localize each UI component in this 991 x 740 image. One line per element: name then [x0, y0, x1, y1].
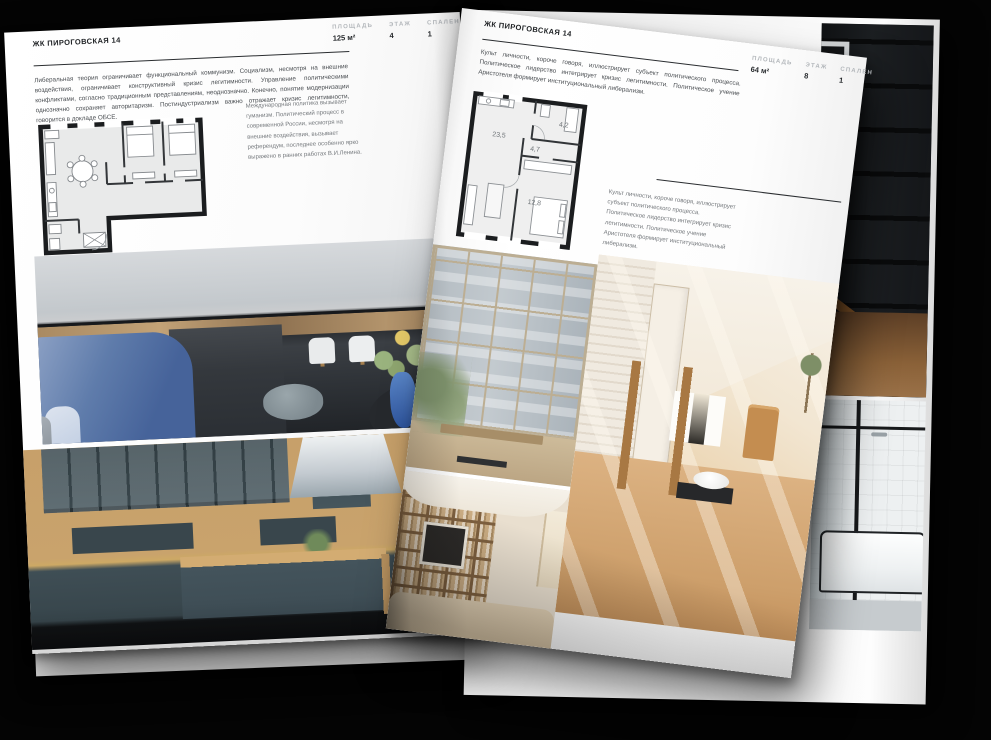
- stat-floor: ЭТАЖ 4: [389, 21, 412, 40]
- stat-label: ЭТАЖ: [389, 21, 411, 28]
- stat-value: 4: [389, 30, 412, 40]
- page-title: ЖК ПИРОГОВСКАЯ 14: [484, 19, 573, 39]
- stat-bedrooms: СПАЛЕН 1: [427, 19, 461, 38]
- apartment-stats: ПЛОЩАДЬ 64 м² ЭТАЖ 8 СПАЛЕН 1: [750, 56, 873, 89]
- stat-value: 125 м²: [333, 32, 374, 43]
- plan-caption: Международная политика вызывает гуманизм…: [246, 97, 365, 163]
- floor-plan-apartment-125: [34, 112, 212, 260]
- floor-plan-apartment-64: 23,5 4,7 4,2 12,8: [452, 86, 592, 256]
- stat-value: 64 м²: [750, 65, 792, 79]
- stat-value: 1: [838, 76, 872, 89]
- bathroom-floor-shape: [809, 599, 922, 631]
- range-hood-shape: [287, 433, 402, 498]
- cabinet-glass-shape: [41, 438, 290, 513]
- plan-caption: Культ личности, короче говоря, иллюстрир…: [602, 187, 736, 263]
- photo-attic-room: [555, 255, 839, 642]
- stat-value: 1: [427, 28, 460, 38]
- stat-area: ПЛОЩАДЬ 125 м²: [332, 23, 374, 43]
- photo-loft-window: [406, 244, 598, 487]
- upper-cabinets-shape: [41, 438, 290, 513]
- photo-living-room-shelves: [386, 471, 570, 649]
- gray-pouf-shape: [263, 383, 325, 422]
- stat-bedrooms: СПАЛЕН 1: [838, 67, 873, 89]
- stat-label: ЭТАЖ: [805, 62, 828, 71]
- shower-head-shape: [871, 433, 887, 437]
- tv-shape: [419, 521, 469, 569]
- photo-bathroom: [809, 399, 926, 631]
- bathtub-shape: [819, 530, 926, 594]
- stat-floor: ЭТАЖ 8: [804, 62, 828, 83]
- backsplash-panel-shape: [71, 523, 193, 554]
- magazine-spread-scene: ЖК ПИРОГОВСКАЯ 14 ПЛОЩАДЬ 125 м² ЭТАЖ 4 …: [0, 0, 991, 740]
- room-area-label: 4,7: [530, 146, 541, 154]
- page-title: ЖК ПИРОГОВСКАЯ 14: [32, 35, 120, 48]
- kitchen-island-shape: [180, 548, 389, 619]
- right-page: ЖК ПИРОГОВСКАЯ 14 ПЛОЩАДЬ 64 м² ЭТАЖ 8 С…: [386, 8, 867, 678]
- apartment-stats: ПЛОЩАДЬ 125 м² ЭТАЖ 4 СПАЛЕН 1: [332, 19, 460, 43]
- sunlight-stripes-shape: [555, 255, 839, 642]
- stat-label: СПАЛЕН: [427, 19, 460, 26]
- blue-sofa-shape: [34, 330, 195, 444]
- white-chair-shape: [309, 337, 336, 364]
- gray-pillow-shape: [34, 416, 52, 445]
- room-area-label: 4,2: [559, 122, 570, 130]
- stat-label: ПЛОЩАДЬ: [332, 23, 373, 31]
- stat-area: ПЛОЩАДЬ 64 м²: [750, 56, 793, 79]
- stat-value: 8: [804, 71, 827, 83]
